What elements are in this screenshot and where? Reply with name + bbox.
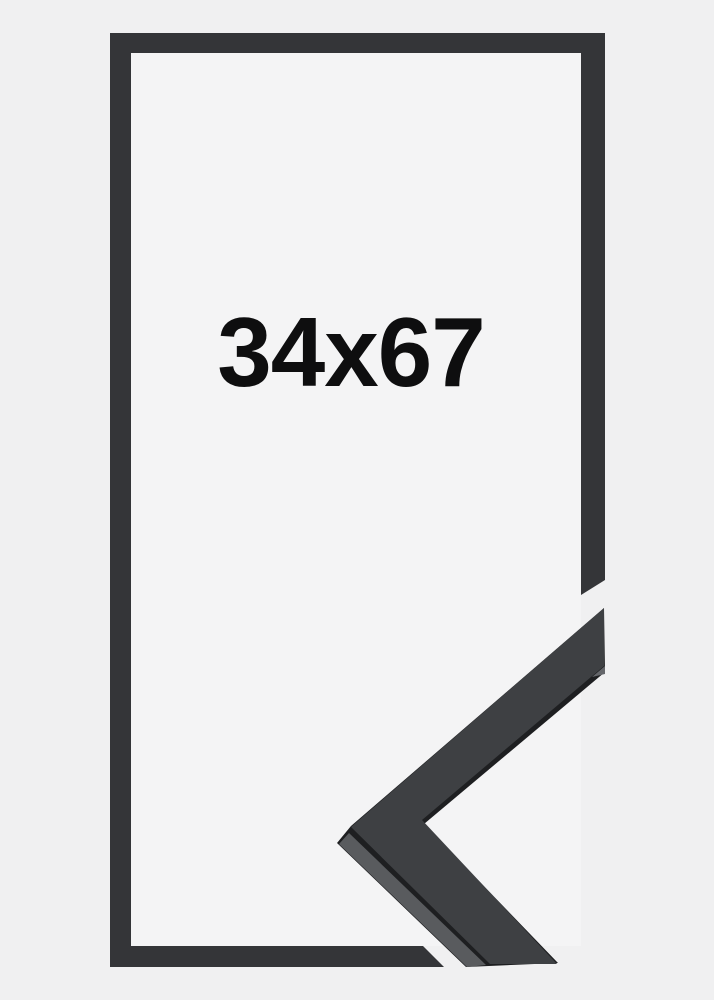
frame-graphic [0,0,714,1000]
frame-outline-top [110,33,605,53]
product-photo: 34x67 [0,0,714,1000]
frame-outline-bottom [110,946,444,967]
size-label: 34x67 [217,303,485,401]
frame-interior [131,53,581,946]
frame-outline-left [110,33,131,967]
frame-outline-right [581,33,605,595]
